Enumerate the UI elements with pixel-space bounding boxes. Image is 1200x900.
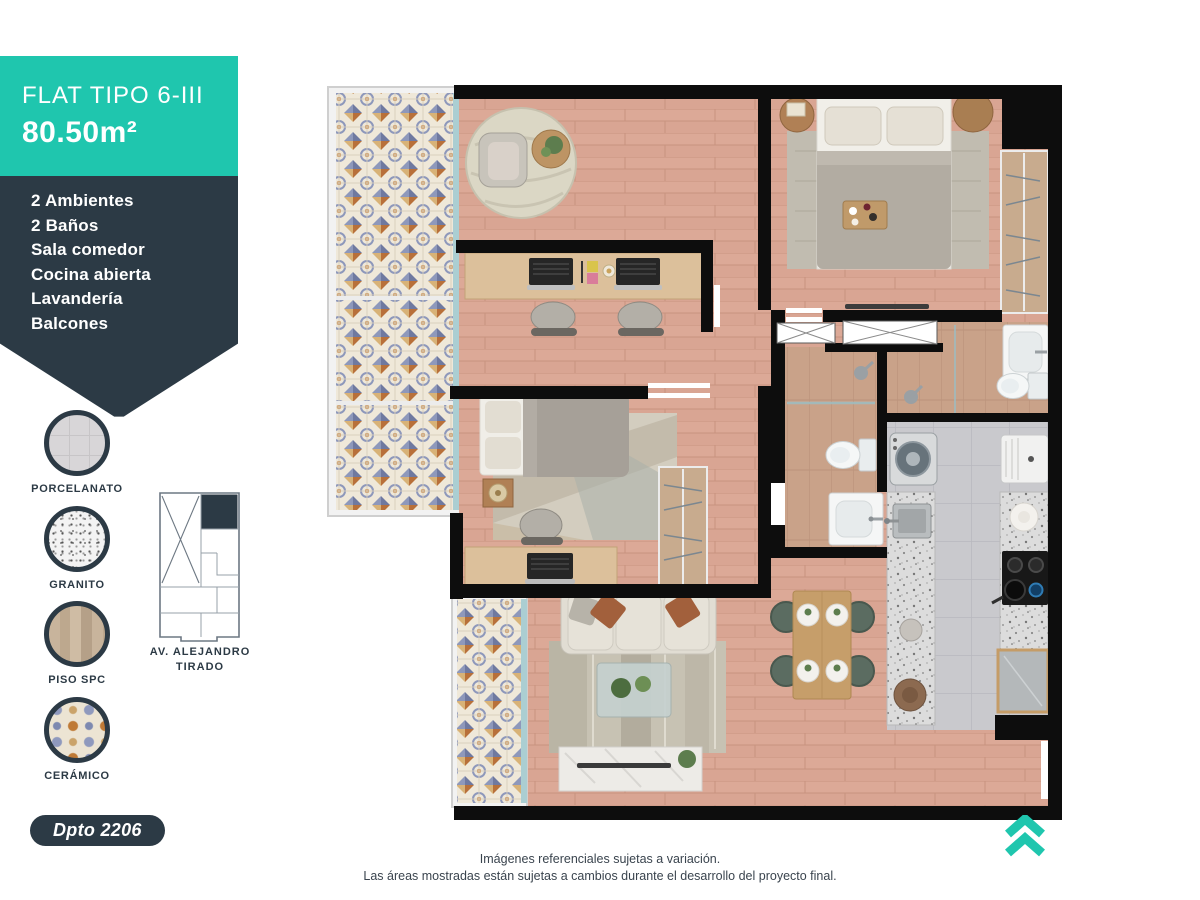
material-porcelanato: PORCELANATO — [0, 410, 154, 495]
disclaimer-line-1: Imágenes referenciales sujetas a variaci… — [0, 851, 1200, 868]
building-keyplan — [157, 491, 243, 648]
street-line-2: TIRADO — [118, 660, 282, 675]
tv-console — [559, 747, 702, 791]
laundry-sink — [1001, 435, 1048, 483]
features-panel: 2 Ambientes 2 Baños Sala comedor Cocina … — [0, 176, 238, 419]
glass-wall — [453, 93, 459, 510]
material-granito: GRANITO — [0, 506, 154, 591]
feature-item: Balcones — [31, 312, 238, 337]
street-label: AV. ALEJANDRO TIRADO — [118, 645, 282, 675]
feature-item: 2 Ambientes — [31, 189, 238, 214]
material-label: CERÁMICO — [0, 770, 154, 782]
material-label: PORCELANATO — [0, 483, 154, 495]
refrigerator — [998, 650, 1048, 712]
coffee-table — [597, 663, 671, 717]
unit-header: FLAT TIPO 6-III 80.50m² — [0, 56, 238, 176]
desk-chair — [531, 302, 575, 332]
feature-item: Lavandería — [31, 287, 238, 312]
bedroom-second — [465, 393, 707, 587]
disclaimer-line-2: Las áreas mostradas están sujetas a camb… — [0, 868, 1200, 885]
living-entry — [466, 108, 576, 218]
desk-chair — [520, 509, 562, 541]
piso-spc-swatch-icon — [44, 601, 110, 667]
keyplan-diagram — [157, 491, 243, 643]
unit-location-marker — [201, 495, 238, 529]
floor-plan-drawing — [325, 85, 1062, 820]
granito-swatch-icon — [44, 506, 110, 572]
brochure-page: FLAT TIPO 6-III 80.50m² 2 Ambientes 2 Ba… — [0, 0, 1200, 900]
feature-item: Cocina abierta — [31, 263, 238, 288]
porcelanato-swatch-icon — [44, 410, 110, 476]
balcony-top-left — [328, 87, 462, 516]
unit-type-label: FLAT TIPO 6-III — [22, 82, 238, 110]
ceramico-swatch-icon — [44, 697, 110, 763]
wardrobe — [1001, 151, 1048, 313]
hall-closets — [777, 321, 937, 344]
feature-item: 2 Baños — [31, 214, 238, 239]
wardrobe — [659, 467, 707, 587]
disclaimer-text: Imágenes referenciales sujetas a variaci… — [0, 851, 1200, 885]
material-ceramico: CERÁMICO — [0, 697, 154, 782]
feature-item: Sala comedor — [31, 238, 238, 263]
street-line-1: AV. ALEJANDRO — [118, 645, 282, 660]
desk-chair — [618, 302, 662, 332]
material-label: GRANITO — [0, 579, 154, 591]
unit-number-badge: Dpto 2206 — [30, 815, 165, 846]
floor-plan — [325, 85, 1062, 820]
balcony-bottom-left — [452, 595, 527, 807]
glass-wall — [521, 599, 527, 803]
living-area — [549, 590, 726, 791]
material-label: PISO SPC — [0, 674, 154, 686]
features-list: 2 Ambientes 2 Baños Sala comedor Cocina … — [31, 189, 238, 336]
unit-area-label: 80.50m² — [22, 116, 238, 150]
tv — [845, 304, 929, 309]
